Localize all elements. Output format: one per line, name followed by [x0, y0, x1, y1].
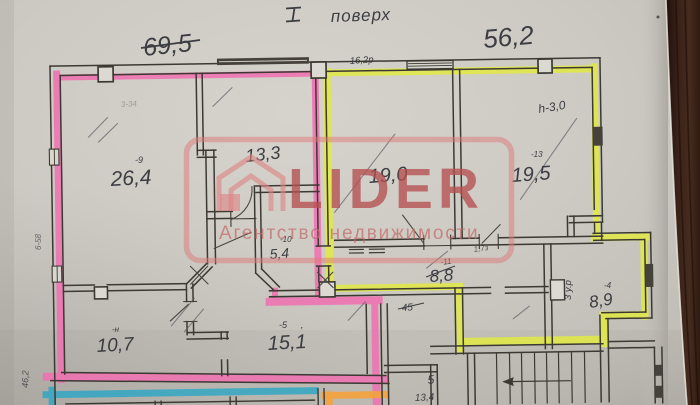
- svg-text:13,4: 13,4: [415, 392, 435, 404]
- svg-text:-9: -9: [135, 155, 143, 165]
- svg-text:8,9: 8,9: [588, 289, 615, 312]
- svg-text:16,2р: 16,2р: [349, 54, 373, 67]
- svg-text:46,2: 46,2: [20, 370, 31, 388]
- svg-text:LIDER: LIDER: [288, 157, 484, 221]
- svg-text:8,8: 8,8: [429, 265, 454, 286]
- svg-text:10,7: 10,7: [96, 334, 135, 357]
- svg-text:поверх: поверх: [330, 5, 391, 26]
- svg-text:56,2: 56,2: [482, 20, 536, 54]
- svg-text:-н: -н: [112, 325, 120, 334]
- svg-text:26,4: 26,4: [109, 166, 152, 191]
- svg-text:-13: -13: [531, 150, 543, 159]
- svg-text:-5: -5: [279, 320, 288, 330]
- svg-text:Агентство недвижимости: Агентство недвижимости: [219, 223, 479, 244]
- svg-text:3 у.р: 3 у.р: [563, 280, 574, 300]
- svg-text:-4: -4: [604, 281, 612, 290]
- svg-text:69,5: 69,5: [142, 29, 193, 62]
- svg-text:6-58: 6-58: [34, 233, 43, 250]
- svg-text:3-34: 3-34: [121, 99, 138, 109]
- svg-text:19,5: 19,5: [511, 162, 552, 187]
